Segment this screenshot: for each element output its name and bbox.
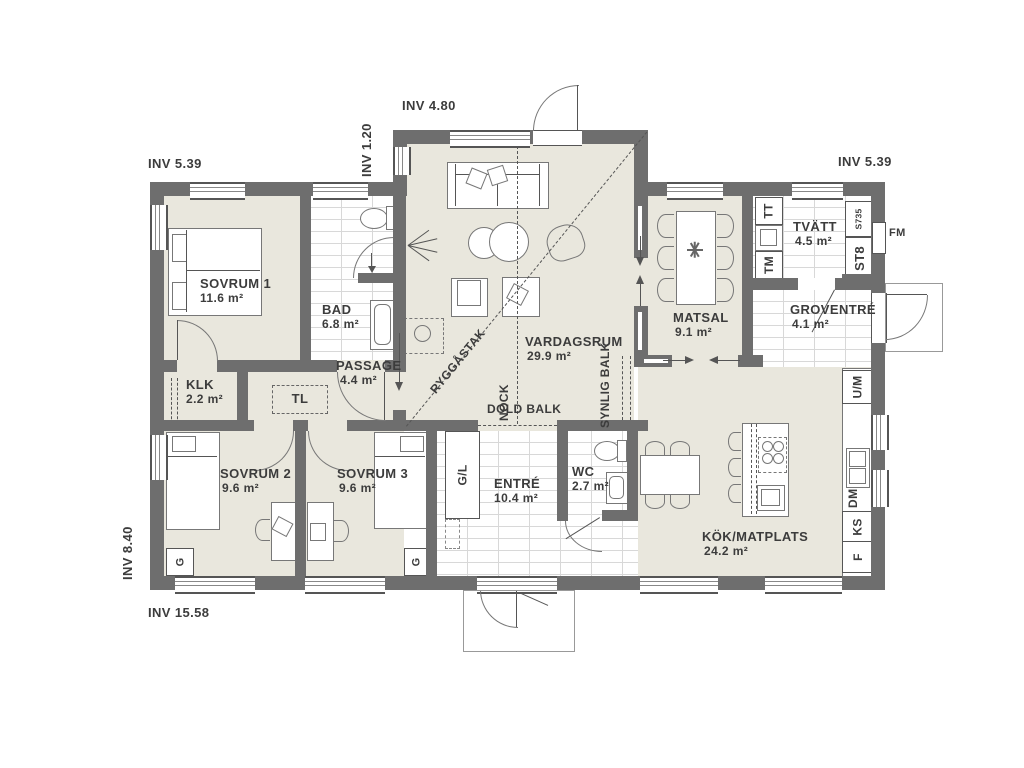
island-duct-line bbox=[751, 424, 752, 514]
room-label-klk: KLK bbox=[186, 378, 214, 393]
threshold bbox=[308, 420, 347, 431]
window bbox=[175, 576, 255, 594]
room-area-matsal: 9.1 m² bbox=[675, 326, 712, 340]
chair bbox=[670, 495, 690, 509]
closet-g-label: G bbox=[410, 558, 422, 567]
sofa-arm-line bbox=[455, 164, 456, 206]
room-area-sovrum3: 9.6 m² bbox=[339, 482, 376, 496]
dim-label-top-center: INV 4.80 bbox=[402, 99, 456, 114]
wall bbox=[627, 431, 638, 521]
room-label-bad: BAD bbox=[322, 303, 351, 318]
meter-cabinet bbox=[872, 222, 886, 254]
synlig-balk-line bbox=[622, 356, 623, 420]
arrow-head-right bbox=[685, 356, 694, 364]
dishwasher-label: DM bbox=[847, 489, 861, 508]
window bbox=[640, 576, 718, 594]
wall bbox=[295, 431, 306, 576]
meter-label-fm: FM bbox=[889, 227, 906, 240]
threshold bbox=[177, 360, 217, 372]
cabinet-s735: S735 bbox=[845, 201, 873, 237]
room-area-tvatt: 4.5 m² bbox=[795, 235, 832, 249]
opening-arrow bbox=[718, 360, 740, 361]
wall bbox=[437, 420, 478, 431]
oven-micro-um: U/M bbox=[842, 370, 873, 404]
beam-label-synlig-balk: SYNLIG BALK bbox=[599, 342, 613, 428]
laundry-sink-bowl bbox=[760, 229, 777, 246]
stove-flue bbox=[414, 325, 431, 342]
armchair-seat bbox=[457, 280, 481, 306]
closet-rail bbox=[177, 378, 178, 424]
closet-g-label: G bbox=[174, 558, 186, 567]
coffee-table bbox=[489, 222, 529, 262]
desk-chair bbox=[255, 519, 270, 541]
room-label-entre: ENTRÉ bbox=[494, 477, 540, 492]
burner bbox=[773, 441, 784, 452]
plant bbox=[694, 242, 696, 258]
bed-divider bbox=[375, 456, 425, 457]
computer bbox=[310, 523, 326, 541]
wall bbox=[300, 196, 311, 366]
chair bbox=[717, 278, 734, 302]
shower-drain-arrow bbox=[368, 266, 376, 273]
door-leaf bbox=[384, 372, 385, 420]
window bbox=[765, 576, 842, 594]
window bbox=[450, 130, 530, 148]
desk-chair bbox=[334, 520, 349, 542]
chair bbox=[670, 441, 690, 455]
nock-line bbox=[517, 146, 518, 424]
room-label-groventre: GROVENTRÉ bbox=[790, 303, 876, 318]
bar-stool bbox=[728, 484, 741, 503]
chair bbox=[657, 214, 674, 238]
pocket-door-leaf bbox=[638, 312, 642, 350]
room-area-kok: 24.2 m² bbox=[704, 545, 748, 559]
toilet bbox=[360, 208, 388, 229]
wall bbox=[293, 420, 308, 431]
room-area-bad: 6.8 m² bbox=[322, 318, 359, 332]
closet-gl: G/L bbox=[445, 431, 480, 519]
window bbox=[792, 182, 843, 200]
beam-label-dold-balk: DOLD BALK bbox=[487, 403, 561, 417]
chair bbox=[645, 441, 665, 455]
dim-label-top-left: INV 5.39 bbox=[148, 157, 202, 172]
attic-hatch-label: TL bbox=[292, 392, 309, 407]
bed-pillow bbox=[172, 436, 196, 452]
wall bbox=[842, 274, 871, 283]
room-label-kok: KÖK/MATPLATS bbox=[702, 530, 808, 545]
closet-g: G bbox=[166, 548, 194, 576]
window bbox=[871, 415, 889, 450]
arrow-head-down bbox=[636, 257, 644, 266]
chair bbox=[645, 495, 665, 509]
wall bbox=[426, 431, 437, 576]
threshold bbox=[254, 420, 293, 431]
fridge-label: KS bbox=[851, 518, 865, 535]
door-arc bbox=[533, 85, 579, 131]
wall bbox=[557, 510, 568, 521]
dim-label-bottom: INV 15.58 bbox=[148, 606, 209, 621]
chair bbox=[657, 278, 674, 302]
closet-g: G bbox=[404, 548, 428, 576]
room-area-entre: 10.4 m² bbox=[494, 492, 538, 506]
kitchen-table bbox=[640, 455, 700, 495]
window bbox=[190, 182, 245, 200]
door-leaf bbox=[177, 320, 178, 360]
dryer: TT bbox=[755, 197, 783, 225]
room-area-vardagsrum: 29.9 m² bbox=[527, 350, 571, 364]
washbasin-bowl bbox=[609, 476, 624, 499]
room-area-klk: 2.2 m² bbox=[186, 393, 223, 407]
washing-machine: TM bbox=[755, 251, 783, 279]
cabinet-s735-label: S735 bbox=[854, 208, 864, 229]
window bbox=[393, 147, 411, 175]
sofa-arm-line bbox=[539, 164, 540, 206]
sink-bowl bbox=[849, 468, 866, 484]
bar-stool bbox=[728, 458, 741, 477]
bed-headboard bbox=[186, 230, 187, 312]
closet-rail bbox=[171, 378, 172, 424]
shower-drain-line bbox=[371, 253, 372, 267]
chair bbox=[717, 246, 734, 270]
room-area-groventre: 4.1 m² bbox=[792, 318, 829, 332]
groventre-porch bbox=[885, 283, 943, 352]
oven-micro-label: U/M bbox=[851, 376, 865, 399]
window bbox=[667, 182, 723, 200]
room-label-tvatt: TVÄTT bbox=[793, 220, 837, 235]
arrow-head-down bbox=[395, 382, 403, 391]
chair bbox=[717, 214, 734, 238]
opening-arrow bbox=[640, 236, 641, 258]
chair bbox=[657, 246, 674, 270]
room-label-passage: PASSAGE bbox=[336, 359, 401, 374]
wall bbox=[164, 420, 254, 431]
window bbox=[305, 576, 385, 594]
room-area-wc: 2.7 m² bbox=[572, 480, 609, 494]
wall bbox=[347, 420, 437, 431]
wall bbox=[557, 431, 568, 521]
wall bbox=[742, 278, 798, 290]
island-sink-bowl bbox=[761, 489, 780, 506]
bed-divider bbox=[186, 270, 260, 271]
shower-wall bbox=[358, 273, 393, 283]
room-label-sovrum1: SOVRUM 1 bbox=[200, 277, 271, 292]
tall-cabinet-st8-label: ST8 bbox=[852, 246, 867, 271]
wall bbox=[602, 510, 638, 521]
window bbox=[150, 435, 168, 480]
dim-label-top-right: INV 5.39 bbox=[838, 155, 892, 170]
washing-machine-label: TM bbox=[762, 256, 776, 274]
window bbox=[871, 470, 889, 507]
dryer-label: TT bbox=[762, 203, 776, 218]
dim-label-top-step: INV 1.20 bbox=[360, 123, 375, 177]
sink-bowl bbox=[849, 451, 866, 467]
wall bbox=[164, 360, 177, 372]
room-area-passage: 4.4 m² bbox=[340, 374, 377, 388]
wall bbox=[237, 372, 248, 420]
dining-table bbox=[676, 211, 716, 305]
bed-pillow bbox=[172, 282, 187, 310]
room-area-sovrum2: 9.6 m² bbox=[222, 482, 259, 496]
wall bbox=[217, 360, 337, 372]
synlig-balk-line bbox=[630, 356, 631, 420]
opening-arrow bbox=[640, 284, 641, 306]
door-leaf bbox=[577, 85, 578, 130]
dold-balk-line bbox=[478, 425, 557, 426]
dim-label-left: INV 8.40 bbox=[121, 526, 136, 580]
wall bbox=[150, 182, 407, 196]
attic-hatch: TL bbox=[272, 385, 328, 414]
room-label-matsal: MATSAL bbox=[673, 311, 729, 326]
closet-gl-label: G/L bbox=[456, 465, 470, 486]
entre-mat bbox=[445, 519, 460, 549]
burner bbox=[762, 441, 773, 452]
window bbox=[313, 182, 368, 200]
room-area-sovrum1: 11.6 m² bbox=[200, 292, 244, 306]
freezer-f: F bbox=[842, 541, 873, 573]
floor-plan: G/L G G TT TM S735 ST8 U/M DM bbox=[0, 0, 1024, 768]
arrow-head-left bbox=[709, 356, 718, 364]
room-label-sovrum3: SOVRUM 3 bbox=[337, 467, 408, 482]
opening-arrow bbox=[663, 360, 685, 361]
room-label-wc: WC bbox=[572, 465, 594, 480]
bed-divider bbox=[167, 456, 217, 457]
room-label-sovrum2: SOVRUM 2 bbox=[220, 467, 291, 482]
bed-pillow bbox=[400, 436, 424, 452]
freezer-label: F bbox=[850, 553, 864, 561]
tall-cabinet-st8: ST8 bbox=[845, 237, 873, 279]
fridge-ks: KS bbox=[842, 511, 873, 542]
burner bbox=[773, 453, 784, 464]
bar-stool bbox=[728, 432, 741, 451]
toilet-tank bbox=[617, 440, 627, 462]
arrow-head-up bbox=[636, 275, 644, 284]
exterior-door bbox=[533, 130, 582, 146]
bathtub-inner bbox=[374, 304, 391, 345]
entry-porch bbox=[463, 590, 575, 652]
burner bbox=[762, 453, 773, 464]
bed-pillow bbox=[172, 234, 187, 262]
window bbox=[150, 205, 168, 250]
